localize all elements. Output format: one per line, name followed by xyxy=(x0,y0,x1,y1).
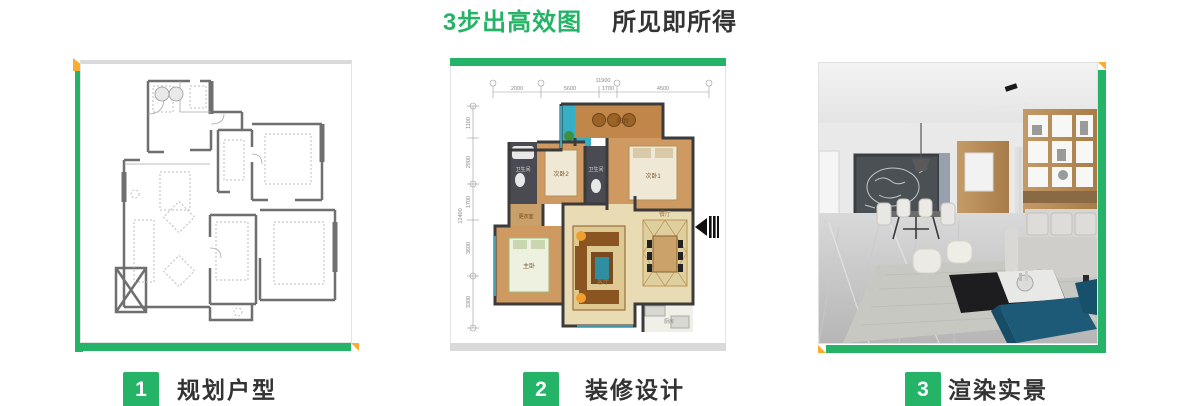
step-2-number: 2 xyxy=(535,378,547,401)
step-2-label: 装修设计 xyxy=(585,373,685,406)
room-label: 主卧 xyxy=(523,262,535,270)
step-1-label: 规划户型 xyxy=(177,373,277,406)
green-frame-bottom xyxy=(75,343,351,351)
title-rest: 所见即所得 xyxy=(612,9,737,36)
dim-total-width: 11900 xyxy=(596,78,611,84)
step-2-badge: 2 xyxy=(523,372,559,406)
title-highlight: 3步出高效图 xyxy=(443,9,582,36)
card-render-photo xyxy=(818,62,1098,344)
sketch-floorplan-image xyxy=(90,72,342,334)
dim-top: 2000 xyxy=(511,86,523,92)
green-frame-bottom xyxy=(826,345,1106,353)
card2-green-top-bar xyxy=(450,58,726,66)
render-photo-image xyxy=(819,63,1097,343)
green-frame-right xyxy=(1098,70,1106,353)
room-label: 卫生间 xyxy=(588,166,603,173)
card-sketch-floorplan xyxy=(80,60,352,343)
dim-left: 1700 xyxy=(466,195,472,207)
room-label: 更衣室 xyxy=(518,213,533,220)
dim-top: 1700 xyxy=(602,86,614,92)
page-title: 3步出高效图所见即所得 xyxy=(0,2,1180,37)
dim-left: 3600 xyxy=(466,241,472,253)
dim-total-height: 12400 xyxy=(458,208,464,223)
room-label: 餐厅 xyxy=(659,210,671,218)
room-label: 阳台 xyxy=(617,117,629,125)
card2-body: 11900 2000 5600 1700 4500 1100 2900 1700… xyxy=(450,66,726,343)
entry-arrow-icon xyxy=(695,216,719,238)
room-label: 厨房 xyxy=(664,318,674,325)
corner-accent-icon xyxy=(1098,62,1106,70)
dim-top: 5600 xyxy=(564,86,576,92)
card2-gray-bottom-bar xyxy=(450,343,726,351)
step-1-badge: 1 xyxy=(123,372,159,406)
step-3-label: 渲染实景 xyxy=(948,373,1048,406)
dim-top: 4500 xyxy=(657,86,669,92)
card-colored-floorplan: 11900 2000 5600 1700 4500 1100 2900 1700… xyxy=(450,58,726,351)
dim-left: 3300 xyxy=(466,295,472,307)
dim-left: 2900 xyxy=(466,155,472,167)
room-label: 卫生间 xyxy=(515,166,530,173)
step-3-number: 3 xyxy=(917,378,929,401)
corner-accent-icon xyxy=(818,345,826,353)
step-1-number: 1 xyxy=(135,378,147,401)
room-label: 次卧1 xyxy=(645,172,661,180)
room-label: 客厅 xyxy=(597,278,609,286)
step-3-badge: 3 xyxy=(905,372,941,406)
colored-floorplan-image: 11900 2000 5600 1700 4500 1100 2900 1700… xyxy=(457,76,719,334)
dim-left: 1100 xyxy=(466,117,472,129)
room-label: 次卧2 xyxy=(553,170,569,178)
corner-accent-icon xyxy=(351,343,359,351)
